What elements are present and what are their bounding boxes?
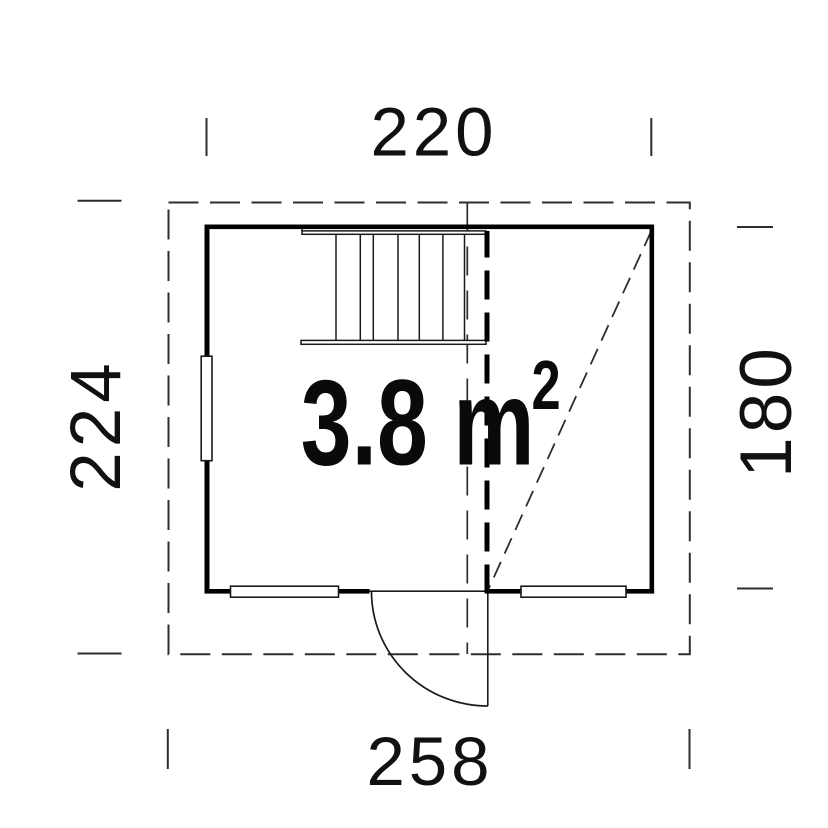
svg-text:180: 180 bbox=[726, 344, 807, 478]
svg-text:2: 2 bbox=[532, 347, 561, 425]
svg-text:220: 220 bbox=[370, 94, 497, 171]
svg-text:3.8 m: 3.8 m bbox=[301, 354, 535, 491]
svg-text:258: 258 bbox=[366, 723, 493, 800]
svg-text:224: 224 bbox=[57, 358, 136, 491]
